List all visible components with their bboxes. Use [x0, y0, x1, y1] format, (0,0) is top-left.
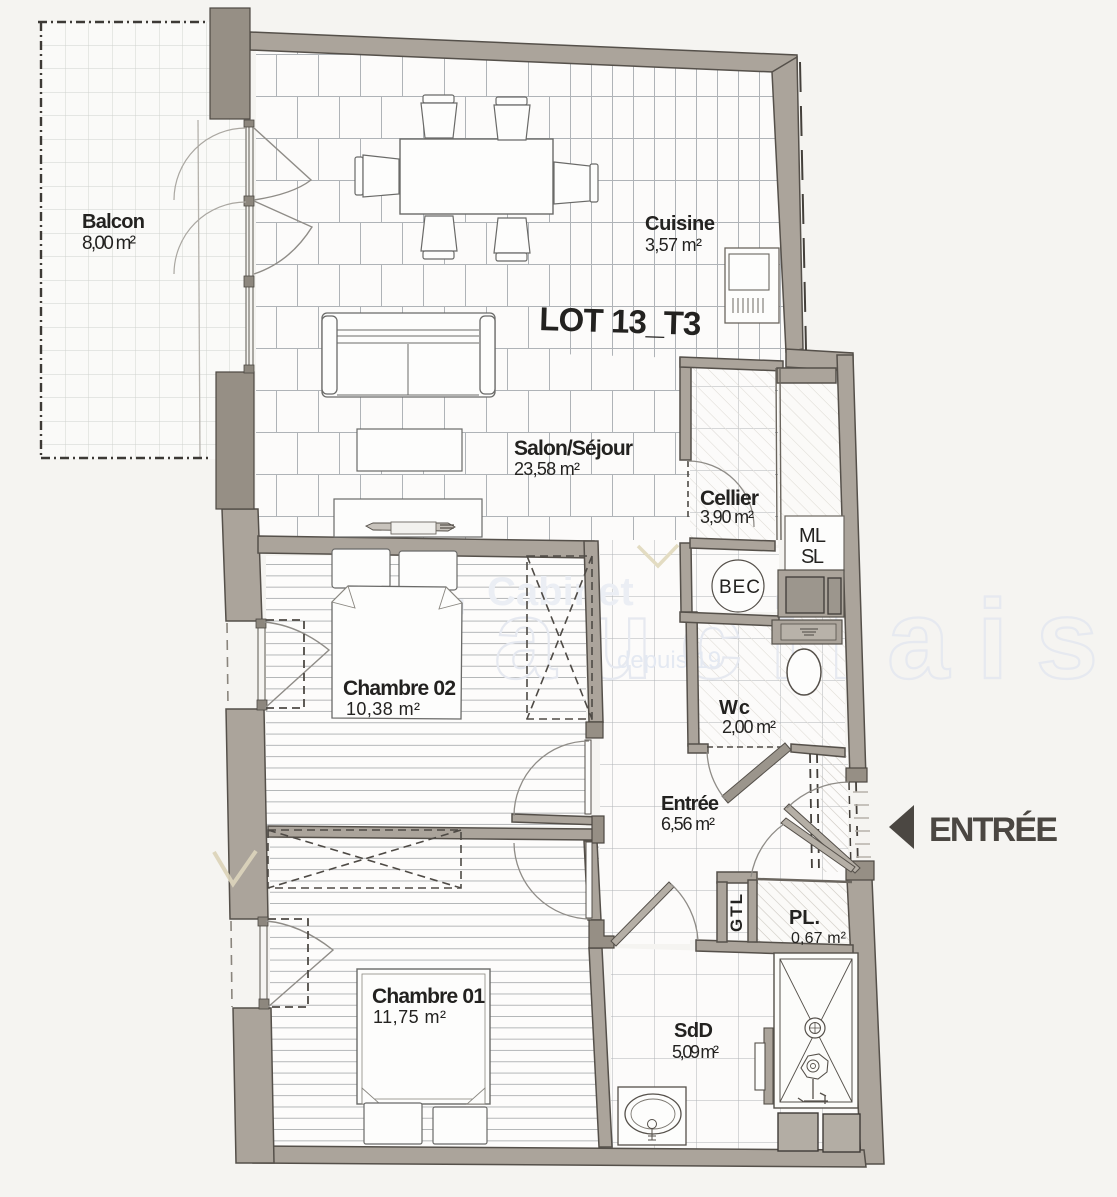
svg-text:Chambre 01: Chambre 01 [372, 985, 485, 1008]
svg-text:Entrée: Entrée [661, 793, 719, 815]
svg-text:depuis 19: depuis 19 [617, 647, 721, 674]
svg-text:LOT 13_T3: LOT 13_T3 [539, 300, 702, 342]
svg-text:Balcon: Balcon [82, 211, 145, 233]
svg-text:11,75 m²: 11,75 m² [373, 1007, 446, 1027]
svg-text:ML: ML [799, 525, 826, 547]
svg-text:8,00 m²: 8,00 m² [82, 233, 136, 254]
svg-text:Salon/Séjour: Salon/Séjour [514, 437, 633, 460]
svg-text:0,67 m²: 0,67 m² [791, 930, 847, 947]
svg-text:GTL: GTL [727, 894, 746, 932]
svg-text:ENTRÉE: ENTRÉE [929, 811, 1058, 849]
svg-text:Cuisine: Cuisine [645, 213, 715, 235]
svg-text:10,38 m²: 10,38 m² [346, 699, 420, 719]
svg-text:Chambre 02: Chambre 02 [343, 677, 456, 700]
svg-text:SL: SL [801, 546, 824, 568]
svg-text:3,90 m²: 3,90 m² [700, 507, 754, 527]
svg-text:Wc: Wc [719, 697, 750, 719]
svg-text:5,09 m²: 5,09 m² [672, 1042, 719, 1062]
svg-text:6,56 m²: 6,56 m² [661, 814, 715, 834]
svg-text:23,58 m²: 23,58 m² [514, 459, 580, 479]
svg-text:PL.: PL. [789, 907, 820, 929]
svg-text:BEC: BEC [719, 577, 760, 598]
svg-text:3,57 m²: 3,57 m² [645, 235, 702, 255]
svg-text:2,00 m²: 2,00 m² [722, 717, 776, 737]
svg-text:SdD: SdD [674, 1020, 713, 1042]
